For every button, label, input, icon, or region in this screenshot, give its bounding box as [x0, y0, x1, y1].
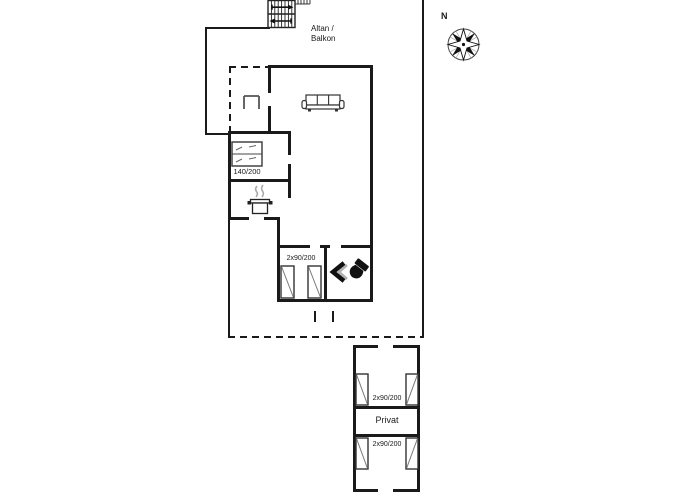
balcony-top-wall	[205, 27, 270, 29]
wall-main-top	[268, 65, 373, 68]
porch-furniture-icon	[242, 94, 262, 112]
balcony-label-line2: Balkon	[311, 34, 335, 44]
wall-bedroom1-top	[228, 131, 291, 134]
shower-icon	[333, 263, 347, 281]
balcony-left-wall	[205, 27, 207, 135]
north-label: N	[441, 11, 448, 21]
wall-annex-top	[393, 345, 420, 348]
wall-privat-top	[353, 406, 420, 409]
porch-dashed-left-line	[229, 66, 231, 134]
bedroom1-bed-label: 140/200	[230, 167, 264, 177]
wall-bedroom1-bottom	[228, 179, 291, 182]
single-bed-icon	[307, 265, 322, 299]
wall-annex-bottom	[393, 489, 420, 492]
wall-kitchen-bottom	[264, 217, 280, 220]
sofa-icon	[300, 92, 346, 116]
annex-privat-label: Privat	[354, 415, 420, 425]
balcony-label-line1: Altan /	[311, 24, 335, 34]
annex-top-bed-label: 2x90/200	[354, 394, 420, 404]
terrace-right-wall	[422, 0, 424, 338]
wall-kitchen-bottom	[228, 217, 249, 220]
terrace-bottom-dashed-line	[228, 336, 424, 338]
bathroom-fixtures	[326, 254, 372, 288]
balcony-label: Altan / Balkon	[311, 24, 335, 44]
wall-living-left	[268, 65, 271, 93]
wall-bathroom-top	[341, 245, 373, 248]
wall-living-left	[268, 106, 271, 134]
single-bed-icon	[280, 265, 295, 299]
floor-plan: Altan / Balkon N 140/200 2x90/200 2x90/2…	[0, 0, 700, 500]
porch-dashed-top-line	[229, 66, 269, 68]
entrance-step-mark	[332, 311, 334, 322]
double-bed-icon	[231, 141, 263, 167]
bedroom2-bed-label: 2x90/200	[277, 254, 325, 264]
entrance-step-mark	[314, 311, 316, 322]
stairs-icon	[264, 0, 314, 30]
wall-bedroom2-top	[277, 245, 310, 248]
wall-annex-top	[353, 345, 378, 348]
compass-rose-icon	[446, 27, 481, 62]
cooking-pot-icon	[246, 184, 274, 217]
wall-bedroom1-right	[288, 131, 291, 155]
wall-bedroom1-right	[288, 164, 291, 198]
terrace-left-wall	[228, 220, 230, 337]
annex-bottom-bed-label: 2x90/200	[354, 440, 420, 450]
wall-annex-bottom	[353, 489, 378, 492]
toilet-icon	[347, 258, 370, 281]
